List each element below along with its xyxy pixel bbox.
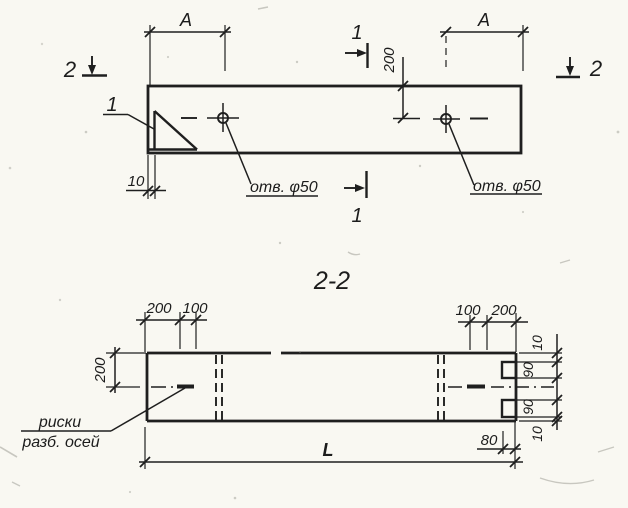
dims-top-left: 200 100: [136, 300, 208, 352]
section-marker-1-top-label: 1: [351, 22, 362, 44]
dim-left-200-label: 200: [92, 357, 109, 384]
hole-callout-left-label: отв. φ50: [250, 179, 318, 196]
dim-a-right-label: A: [477, 10, 490, 30]
notch-upper: [502, 362, 516, 378]
dim-200-plan-label: 200: [381, 47, 398, 74]
hole-callout-left: отв. φ50: [226, 123, 318, 196]
dim-length-l-label: L: [323, 440, 334, 460]
section-marker-1-bottom: 1: [344, 171, 367, 227]
centerline-right: [448, 387, 556, 388]
dim-a-left-label: A: [179, 10, 192, 30]
section-marker-1-top: 1: [345, 22, 368, 68]
dim-a-left: A: [144, 10, 231, 85]
hole-callout-right-label: отв. φ50: [473, 178, 541, 195]
section-marker-2-left: 2: [63, 56, 107, 82]
drawing-sheet: A A 200 10 1: [0, 0, 628, 508]
section-title: 2-2: [313, 267, 350, 295]
section-2-2-view: 2-2: [21, 267, 562, 469]
hidden-lines-right: [438, 355, 444, 420]
chain-90-top-label: 90: [520, 362, 536, 378]
chain-10-top-label: 10: [529, 335, 545, 351]
hole-right: [433, 105, 488, 133]
hole-left: [181, 103, 239, 132]
chain-dims-right: 10 90 90 10: [517, 334, 562, 442]
dim-10-plan: 10: [126, 155, 166, 199]
beam-drawing: A A 200 10 1: [0, 0, 628, 508]
hole-callout-right: отв. φ50: [449, 124, 542, 195]
corner-triangle-mark: [149, 111, 197, 150]
detail-callout-1: 1: [103, 94, 154, 129]
dim-a-right: A: [440, 10, 529, 71]
dim-left-200: 200: [92, 347, 146, 393]
axis-note-line1: риски: [38, 414, 81, 431]
axis-marks-note: риски разб. осей: [21, 388, 185, 451]
dim-80-label: 80: [481, 432, 498, 449]
chain-90-bottom-label: 90: [520, 399, 536, 415]
dim-tl-200-label: 200: [145, 300, 172, 317]
dim-tl-100-label: 100: [182, 300, 208, 317]
chain-10-bottom-label: 10: [529, 426, 545, 442]
dim-tr-100-label: 100: [455, 302, 481, 319]
detail-callout-1-label: 1: [106, 94, 117, 116]
centerline-left: [151, 387, 194, 388]
notch-lower: [502, 400, 516, 417]
dims-top-right: 100 200: [455, 302, 528, 352]
section-marker-2-right-label: 2: [589, 56, 602, 81]
scan-artifacts: [0, 7, 619, 499]
section-marker-2-left-label: 2: [63, 57, 76, 82]
axis-note-line2: разб. осей: [21, 434, 99, 451]
section-marker-2-right: 2: [556, 56, 602, 81]
dim-tr-200-label: 200: [490, 302, 517, 319]
plan-view: A A 200 10 1: [63, 10, 602, 227]
hidden-lines-left: [216, 355, 222, 420]
dim-length-l: L: [139, 421, 523, 469]
section-marker-1-bottom-label: 1: [351, 205, 362, 227]
beam-outline-plan: [148, 86, 521, 153]
dim-10-plan-label: 10: [128, 173, 145, 190]
